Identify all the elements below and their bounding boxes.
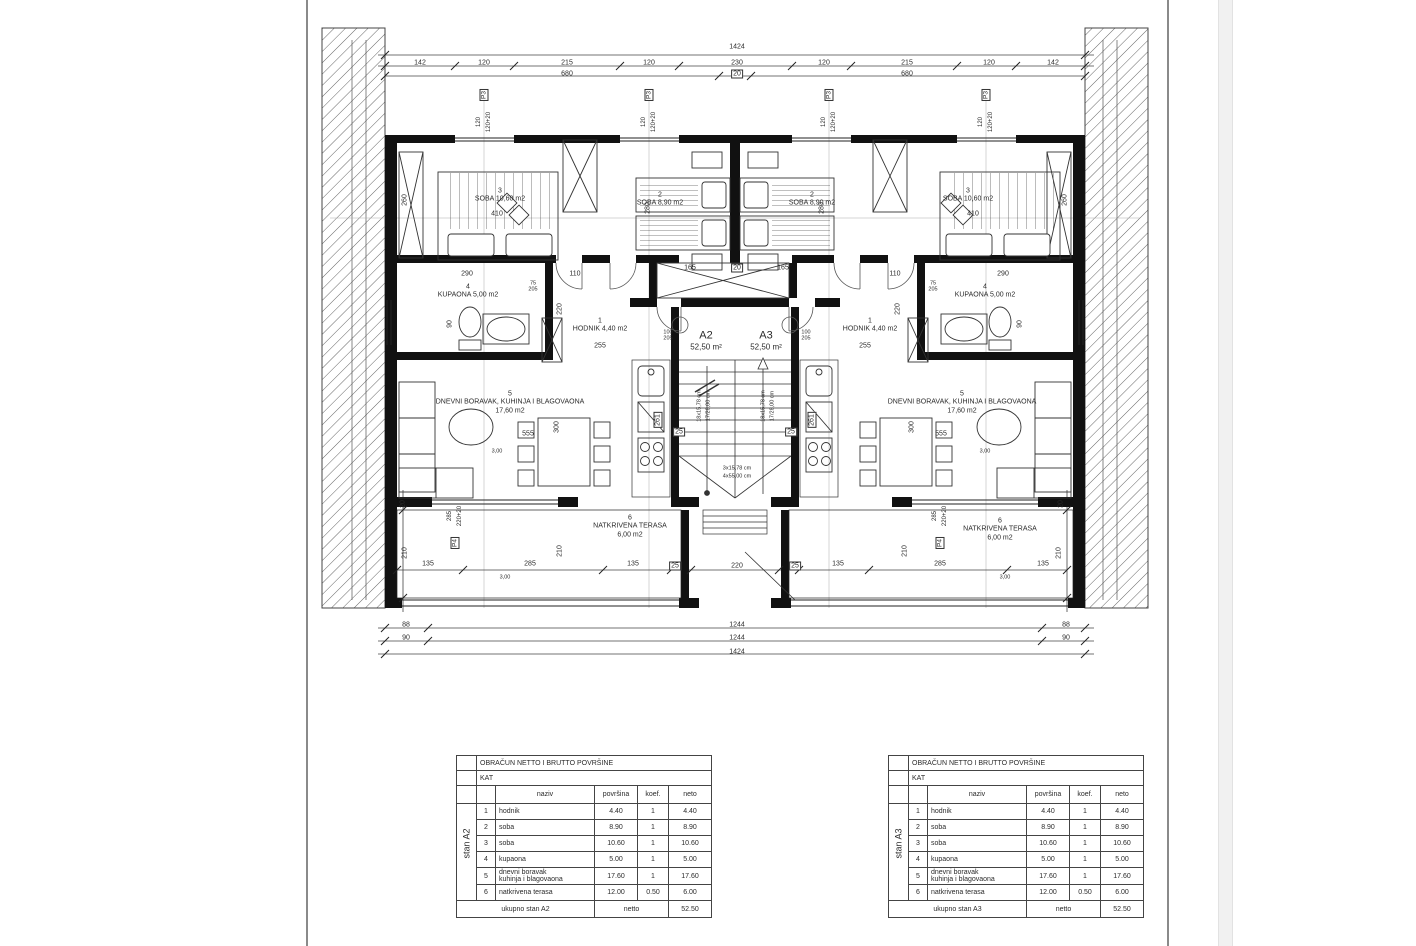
room-label: 1HODNIK 4,40 m2: [573, 318, 627, 335]
dim-label: 680: [901, 71, 913, 78]
header-cell: [477, 786, 496, 804]
apartment-label: A352,50 m²: [750, 330, 782, 353]
dim-label: 255: [859, 343, 871, 350]
dim-tick: [1081, 650, 1089, 658]
dim-label: 90: [402, 635, 410, 642]
sheet-left-edge: [306, 0, 308, 946]
row-number: 2: [909, 820, 928, 836]
row-povrsina: 12.00: [1027, 885, 1070, 901]
dim-label: 300: [909, 421, 916, 433]
header-cell: [909, 786, 928, 804]
row-number: 1: [477, 804, 496, 820]
dim-tick: [451, 62, 459, 70]
dim-label: 120: [983, 60, 995, 67]
footer-netto-label: netto: [595, 901, 669, 918]
dim-label: 220: [557, 303, 564, 315]
dim-label: 285: [934, 561, 946, 568]
dim-label: 20: [1058, 500, 1065, 508]
row-name: soba: [928, 836, 1027, 852]
sheet-right-edge: [1167, 0, 1169, 946]
dim-label: 261: [808, 412, 817, 428]
dim-tick: [599, 566, 607, 574]
row-koef: 1: [638, 804, 669, 820]
row-number: 6: [477, 885, 496, 901]
dim-tick: [953, 62, 961, 70]
dim-label: 25: [673, 428, 685, 437]
dim-tick: [1081, 637, 1089, 645]
room-label: 2SOBA 8,90 m2: [789, 192, 835, 209]
dim-tick: [1081, 62, 1089, 70]
window-dim: 120+20: [831, 112, 837, 132]
dim-label: 280: [645, 202, 652, 214]
side-spacer: [457, 786, 477, 804]
row-neto: 17.60: [669, 868, 712, 885]
window-dim: 285: [447, 511, 453, 521]
dim-label: 75205: [528, 282, 537, 293]
dim-label: 3x15,78 cm: [723, 466, 751, 472]
row-name: dnevni boravak kuhinja i blagovaona: [928, 868, 1027, 885]
dim-label: 210: [557, 545, 564, 557]
header-naziv: naziv: [496, 786, 595, 804]
dim-tick: [1063, 594, 1071, 602]
header-neto: neto: [669, 786, 712, 804]
staircase: [679, 358, 795, 600]
dim-label: 165: [777, 265, 789, 272]
footer-total-label: ukupno stan A2: [457, 901, 595, 918]
row-number: 5: [909, 868, 928, 885]
row-neto: 4.40: [669, 804, 712, 820]
dim-label: 1244: [729, 635, 745, 642]
dim-label: 18x15,78 cm: [761, 390, 767, 422]
row-neto: 5.00: [669, 852, 712, 868]
area-table-a2: OBRAČUN NETTO I BRUTTO POVRŠINEKATnazivp…: [456, 755, 712, 918]
walls: [385, 135, 1085, 608]
row-number: 4: [909, 852, 928, 868]
footer-total-label: ukupno stan A3: [889, 901, 1027, 918]
side-spacer: [889, 786, 909, 804]
table-side-label: stan A2: [457, 804, 477, 901]
dim-label: 261: [654, 412, 663, 428]
dim-label: 290: [461, 271, 473, 278]
window-tag: P4: [451, 537, 460, 549]
window-dim: 120: [821, 117, 827, 127]
dim-label: 3,00: [500, 575, 511, 581]
room-label: 5DNEVNI BORAVAK, KUHINJA I BLAGOVAONA17,…: [888, 390, 1037, 415]
header-koef: koef.: [1070, 786, 1101, 804]
side-spacer: [889, 771, 909, 786]
dim-label: 135: [422, 561, 434, 568]
dim-label: 210: [1056, 547, 1063, 559]
row-name: kupaona: [496, 852, 595, 868]
dim-tick: [788, 62, 796, 70]
dim-label: 20: [400, 500, 407, 508]
row-neto: 4.40: [1101, 804, 1144, 820]
footer-total-value: 52.50: [1101, 901, 1144, 918]
dim-tick: [865, 566, 873, 574]
dim-tick: [1038, 637, 1046, 645]
row-koef: 0.50: [638, 885, 669, 901]
footer-netto-label: netto: [1027, 901, 1101, 918]
dim-tick: [1081, 624, 1089, 632]
row-koef: 1: [638, 868, 669, 885]
window-tag: P3: [480, 89, 489, 101]
dim-label: 555: [522, 431, 534, 438]
row-neto: 17.60: [1101, 868, 1144, 885]
row-name: soba: [496, 820, 595, 836]
row-koef: 1: [1070, 804, 1101, 820]
dim-tick: [675, 62, 683, 70]
dim-tick: [1003, 566, 1011, 574]
apartment-label: A252,50 m²: [690, 330, 722, 353]
row-name: natkrivena terasa: [928, 885, 1027, 901]
dim-tick: [1063, 506, 1071, 514]
row-koef: 1: [1070, 820, 1101, 836]
row-neto: 6.00: [669, 885, 712, 901]
row-povrsina: 17.60: [1027, 868, 1070, 885]
dim-tick: [667, 566, 675, 574]
dim-label: 110: [569, 271, 580, 278]
row-povrsina: 5.00: [595, 852, 638, 868]
window-dim: 285: [932, 511, 938, 521]
dim-label: 3,00: [492, 449, 503, 455]
row-povrsina: 8.90: [595, 820, 638, 836]
scrollbar[interactable]: [1218, 0, 1233, 946]
row-name: soba: [496, 836, 595, 852]
axis-lines: [330, 100, 1140, 608]
window-dim: 120+20: [988, 112, 994, 132]
dim-label: 1424: [729, 44, 745, 51]
row-povrsina: 10.60: [595, 836, 638, 852]
room-label: 5DNEVNI BORAVAK, KUHINJA I BLAGOVAONA17,…: [436, 390, 585, 415]
dim-tick: [381, 637, 389, 645]
dim-label: 100205: [801, 331, 810, 342]
furniture: [399, 152, 1071, 498]
dim-label: 220: [731, 563, 743, 570]
row-povrsina: 12.00: [595, 885, 638, 901]
window-dim: 120: [641, 117, 647, 127]
dim-tick: [847, 62, 855, 70]
window-dim: 220+20: [457, 506, 463, 526]
dim-tick: [510, 62, 518, 70]
header-povrsina: površina: [1027, 786, 1070, 804]
header-povrsina: površina: [595, 786, 638, 804]
dim-label: 90: [447, 320, 454, 328]
row-neto: 10.60: [1101, 836, 1144, 852]
row-povrsina: 4.40: [595, 804, 638, 820]
dim-label: 280: [819, 202, 826, 214]
hatched-neighbour-walls: [322, 28, 1148, 608]
row-number: 2: [477, 820, 496, 836]
footer-total-value: 52.50: [669, 901, 712, 918]
row-neto: 10.60: [669, 836, 712, 852]
crossed-boxes: [399, 140, 1071, 362]
row-name: dnevni boravak kuhinja i blagovaona: [496, 868, 595, 885]
window-dim: 220+20: [942, 506, 948, 526]
dim-tick: [1081, 72, 1089, 80]
row-name: natkrivena terasa: [496, 885, 595, 901]
window-dim: 120: [476, 117, 482, 127]
room-label: 4KUPAONA 5,00 m2: [438, 284, 499, 301]
table-side-label: stan A3: [889, 804, 909, 901]
row-povrsina: 17.60: [595, 868, 638, 885]
row-number: 1: [909, 804, 928, 820]
row-number: 5: [477, 868, 496, 885]
dim-label: 165: [684, 265, 696, 272]
dim-label: 680: [561, 71, 573, 78]
dim-label: 410: [967, 211, 979, 218]
dim-label: 260: [1062, 194, 1069, 206]
dim-tick: [399, 506, 407, 514]
row-neto: 8.90: [1101, 820, 1144, 836]
dim-label: 135: [832, 561, 844, 568]
dim-tick: [381, 650, 389, 658]
dim-label: 3,00: [1000, 575, 1011, 581]
row-povrsina: 4.40: [1027, 804, 1070, 820]
dim-tick: [687, 566, 695, 574]
window-tag: P3: [982, 89, 991, 101]
row-koef: 1: [1070, 868, 1101, 885]
dim-label: 110: [889, 271, 900, 278]
row-name: soba: [928, 820, 1027, 836]
dim-label: 20: [731, 70, 743, 79]
header-naziv: naziv: [928, 786, 1027, 804]
dim-tick: [399, 594, 407, 602]
window-tag: P3: [645, 89, 654, 101]
dim-label: 285: [524, 561, 536, 568]
dim-label: 75205: [928, 282, 937, 293]
room-label: 6NATKRIVENA TERASA6,00 m2: [963, 517, 1037, 542]
dim-tick: [616, 62, 624, 70]
row-name: hodnik: [928, 804, 1027, 820]
side-spacer: [457, 756, 477, 771]
dim-tick: [1038, 624, 1046, 632]
row-number: 3: [909, 836, 928, 852]
dim-label: 210: [402, 547, 409, 559]
dim-tick: [393, 566, 401, 574]
dim-label: 88: [1062, 622, 1070, 629]
side-spacer: [457, 771, 477, 786]
header-neto: neto: [1101, 786, 1144, 804]
window-dim: 120+20: [651, 112, 657, 132]
dim-label: 25: [669, 562, 681, 571]
dim-tick: [715, 72, 723, 80]
row-koef: 1: [638, 852, 669, 868]
dim-label: 215: [901, 60, 913, 67]
dim-label: 300: [554, 421, 561, 433]
header-koef: koef.: [638, 786, 669, 804]
dim-label: 90: [1062, 635, 1070, 642]
row-number: 4: [477, 852, 496, 868]
dim-tick: [459, 566, 467, 574]
room-label: 6NATKRIVENA TERASA6,00 m2: [593, 514, 667, 539]
room-label: 4KUPAONA 5,00 m2: [955, 284, 1016, 301]
dim-label: 210: [902, 545, 909, 557]
dim-tick: [381, 72, 389, 80]
dim-label: 88: [402, 622, 410, 629]
row-koef: 1: [638, 836, 669, 852]
dim-label: 260: [402, 194, 409, 206]
window-tag: P3: [825, 89, 834, 101]
row-neto: 8.90: [669, 820, 712, 836]
dim-label: 90: [1017, 320, 1024, 328]
table-title: OBRAČUN NETTO I BRUTTO POVRŠINE: [909, 756, 1144, 771]
dim-tick: [381, 62, 389, 70]
dim-label: 4x55,00 cm: [723, 474, 751, 480]
dim-label: 3,00: [980, 449, 991, 455]
dim-tick: [424, 637, 432, 645]
row-name: kupaona: [928, 852, 1027, 868]
dim-tick: [1063, 566, 1071, 574]
dim-label: 20: [731, 264, 743, 273]
dim-label: 215: [561, 60, 573, 67]
pdf-floorplan-view: { "plan": { "dim_labels": [ {"x":737,"y"…: [0, 0, 1416, 946]
row-povrsina: 8.90: [1027, 820, 1070, 836]
table-floor: KAT: [477, 771, 712, 786]
dim-label: 120: [478, 60, 490, 67]
door-arcs: [556, 263, 914, 333]
window-tag: P4: [936, 537, 945, 549]
row-povrsina: 5.00: [1027, 852, 1070, 868]
row-koef: 1: [638, 820, 669, 836]
row-koef: 1: [1070, 852, 1101, 868]
dimension-lines: [378, 55, 1094, 654]
dim-label: 18x15,78 cm: [697, 390, 703, 422]
room-label: 2SOBA 8,90 m2: [637, 192, 683, 209]
dim-tick: [381, 51, 389, 59]
dim-label: 135: [627, 561, 639, 568]
dim-label: 1244: [729, 622, 745, 629]
dim-label: 220: [895, 303, 902, 315]
dim-tick: [1012, 62, 1020, 70]
dim-tick: [1081, 51, 1089, 59]
dim-label: 17/28,00 cm: [770, 391, 776, 421]
row-koef: 0.50: [1070, 885, 1101, 901]
dim-label: 25: [789, 562, 801, 571]
windows: [387, 138, 1083, 606]
dim-label: 255: [594, 343, 606, 350]
dim-label: 100205: [663, 331, 672, 342]
dim-label: 25: [785, 428, 797, 437]
room-label: 3SOBA 10,60 m2: [943, 188, 993, 205]
row-povrsina: 10.60: [1027, 836, 1070, 852]
dim-label: 230: [731, 60, 743, 67]
dim-label: 135: [1037, 561, 1049, 568]
dim-tick: [795, 566, 803, 574]
dim-label: 290: [997, 271, 1009, 278]
dim-label: 142: [414, 60, 426, 67]
room-label: 1HODNIK 4,40 m2: [843, 318, 897, 335]
window-dim: 120: [978, 117, 984, 127]
dim-tick: [747, 72, 755, 80]
room-label: 3SOBA 10,60 m2: [475, 188, 525, 205]
window-dim: 120+20: [486, 112, 492, 132]
dim-label: 120: [818, 60, 830, 67]
row-number: 6: [909, 885, 928, 901]
dim-label: 555: [935, 431, 947, 438]
row-name: hodnik: [496, 804, 595, 820]
row-koef: 1: [1070, 836, 1101, 852]
dim-label: 17/28,00 cm: [706, 391, 712, 421]
area-table-a3: OBRAČUN NETTO I BRUTTO POVRŠINEKATnazivp…: [888, 755, 1144, 918]
dim-tick: [381, 624, 389, 632]
row-neto: 6.00: [1101, 885, 1144, 901]
dim-label: 142: [1047, 60, 1059, 67]
dim-label: 120: [643, 60, 655, 67]
row-number: 3: [477, 836, 496, 852]
dim-tick: [775, 566, 783, 574]
side-spacer: [889, 756, 909, 771]
row-neto: 5.00: [1101, 852, 1144, 868]
dim-label: 1424: [729, 649, 745, 656]
dim-tick: [424, 624, 432, 632]
table-floor: KAT: [909, 771, 1144, 786]
dim-label: 410: [491, 211, 503, 218]
table-title: OBRAČUN NETTO I BRUTTO POVRŠINE: [477, 756, 712, 771]
